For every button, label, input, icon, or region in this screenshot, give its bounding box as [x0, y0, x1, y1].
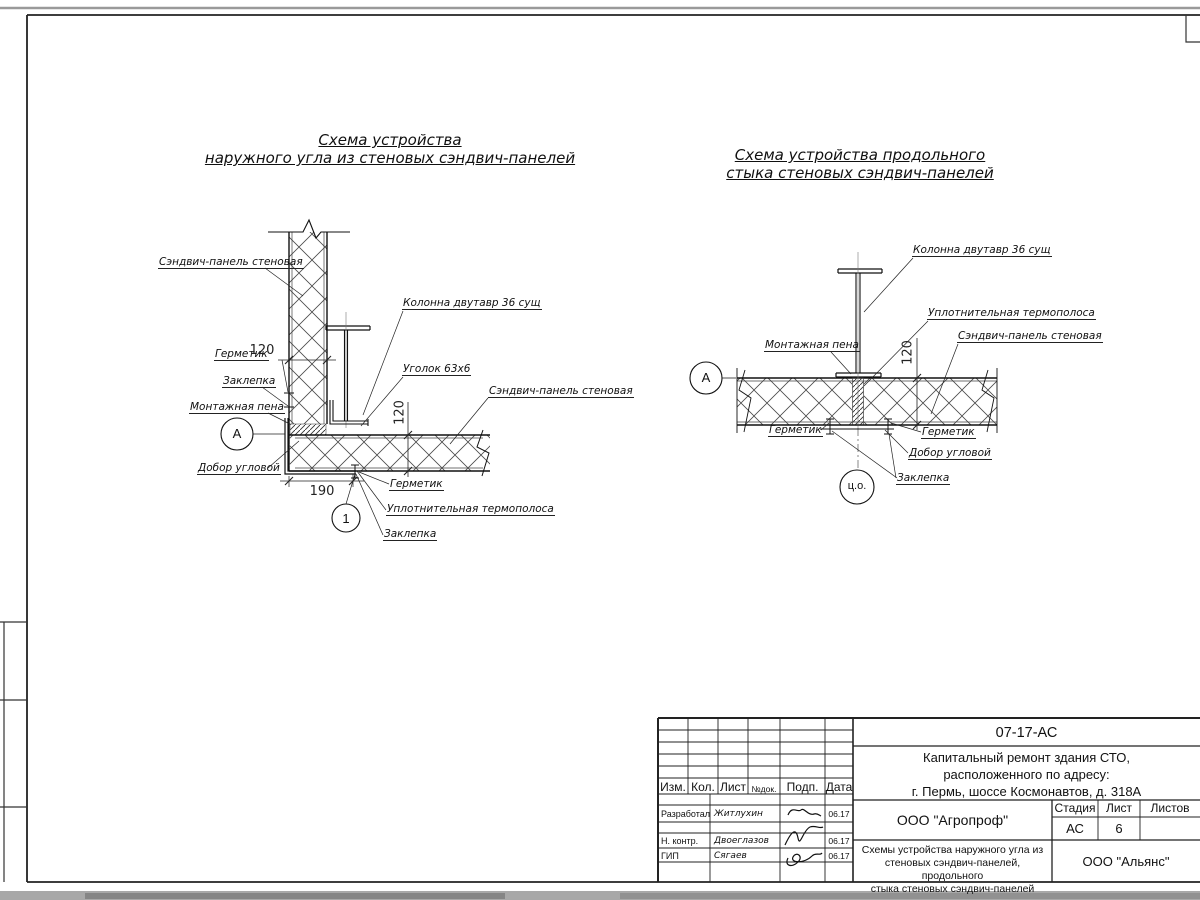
d2-label-corner-trim: Добор угловой [908, 447, 992, 460]
d2-label-sealant-left: Герметик [768, 424, 823, 437]
d2-label-wall-panel: Сэндвич-панель стеновая [957, 330, 1103, 343]
tb-stage-value: АС [1052, 821, 1098, 836]
tb-project-description: Капитальный ремонт здания СТО, расположе… [853, 749, 1200, 800]
d2-leaders [821, 258, 958, 478]
drawing1-title-line2: наружного угла из стеновых сэндвич-панел… [205, 149, 575, 167]
d2-marker-a: А [694, 370, 718, 385]
tb-sheets-label: Листов [1140, 801, 1200, 815]
tb-sheet-title-line2: стеновых сэндвич-панелей, продольного [885, 857, 1020, 882]
d1-marker-1: 1 [334, 511, 358, 526]
d1-dim-190: 190 [300, 484, 344, 499]
drawing-sheet: Схема устройства наружного угла из стено… [0, 0, 1200, 900]
d1-label-wall-panel: Сэндвич-панель стеновая [158, 256, 304, 269]
d2-label-foam: Монтажная пена [764, 339, 860, 352]
tb-project-line1: Капитальный ремонт здания СТО, [923, 750, 1130, 765]
drawing1-title-line1: Схема устройства [318, 131, 461, 149]
signature-nkontr [785, 826, 823, 845]
tb-org-designer: ООО "Агропроф" [853, 812, 1052, 828]
tb-sheet-title: Схемы устройства наружного угла из стено… [856, 844, 1049, 896]
d1-dim-120-vertical: 120 [393, 393, 408, 433]
tb-header-ndok: №док. [748, 784, 780, 794]
d1-label-wall-panel-right: Сэндвич-панель стеновая [488, 385, 634, 398]
drawing2-title-line2: стыка стеновых сэндвич-панелей [726, 164, 994, 182]
drawing1-title: Схема устройства наружного угла из стено… [170, 131, 610, 167]
d1-label-foam: Монтажная пена [189, 401, 285, 414]
d2-label-rivet: Заклепка [896, 472, 950, 485]
d1-label-column: Колонна двутавр 36 сущ [402, 297, 542, 310]
signature-razrabotal [788, 809, 821, 816]
tb-stage-label: Стадия [1052, 801, 1098, 815]
tb-header-podp: Подп. [780, 780, 825, 794]
drawing2-title-line1: Схема устройства продольного [735, 146, 985, 164]
tb-name-syagaev: Сягаев [714, 851, 747, 861]
d1-label-rivet-bottom: Заклепка [383, 528, 437, 541]
tb-project-line2: расположенного по адресу: [943, 767, 1109, 782]
tb-date-nkontr: 06.17 [825, 836, 853, 846]
tb-org-customer: ООО "Альянс" [1052, 854, 1200, 869]
tb-date-gip: 06.17 [825, 851, 853, 861]
tb-role-razrabotal: Разработал [661, 809, 710, 819]
d1-marker-a: А [225, 426, 249, 441]
d1-label-sealant-bottom: Герметик [389, 478, 444, 491]
drawing2-title: Схема устройства продольного стыка стено… [665, 146, 1055, 182]
tb-header-list: Лист [718, 780, 748, 794]
tb-header-kol: Кол. [688, 780, 718, 794]
tb-header-izm: Изм. [658, 780, 688, 794]
d1-label-angle: Уголок 63х6 [402, 363, 471, 376]
d2-marker-co: ц.о. [840, 480, 874, 492]
d2-label-thermal-strip: Уплотнительная термополоса [927, 307, 1096, 320]
d1-dim-120-horizontal: 120 [240, 343, 284, 358]
d2-label-sealant-right: Герметик [921, 426, 976, 439]
tb-name-dvoeglazov: Двоеглазов [714, 836, 769, 846]
tb-header-data: Дата [825, 780, 853, 794]
d1-foam-strip [290, 424, 326, 435]
d1-angle [330, 400, 368, 426]
tb-sheet-title-line1: Схемы устройства наружного угла из [862, 844, 1043, 856]
tb-project-line3: г. Пермь, шоссе Космонавтов, д. 318А [912, 784, 1141, 799]
d2-label-column: Колонна двутавр 36 сущ [912, 244, 1052, 257]
tb-sheet-value: 6 [1098, 821, 1140, 836]
d1-horizontal-panel [289, 430, 490, 476]
tb-sheet-title-line3: стыка стеновых сэндвич-панелей [871, 883, 1035, 895]
tb-name-zhitlukhin: Житлухин [714, 809, 763, 819]
d1-label-corner-trim: Добор угловой [197, 462, 281, 475]
tb-doc-number: 07-17-АС [853, 725, 1200, 741]
d2-dim-120-vertical: 120 [901, 333, 916, 373]
tb-sheet-label: Лист [1098, 801, 1140, 815]
d2-column-ibeam [836, 252, 882, 470]
tb-role-gip: ГИП [661, 851, 679, 861]
signature-gip [787, 853, 822, 865]
d1-label-rivet-left: Заклепка [222, 375, 276, 388]
tb-date-razrabotal: 06.17 [825, 809, 853, 819]
d1-label-thermal-strip: Уплотнительная термополоса [386, 503, 555, 516]
tb-role-nkontr: Н. контр. [661, 836, 698, 846]
